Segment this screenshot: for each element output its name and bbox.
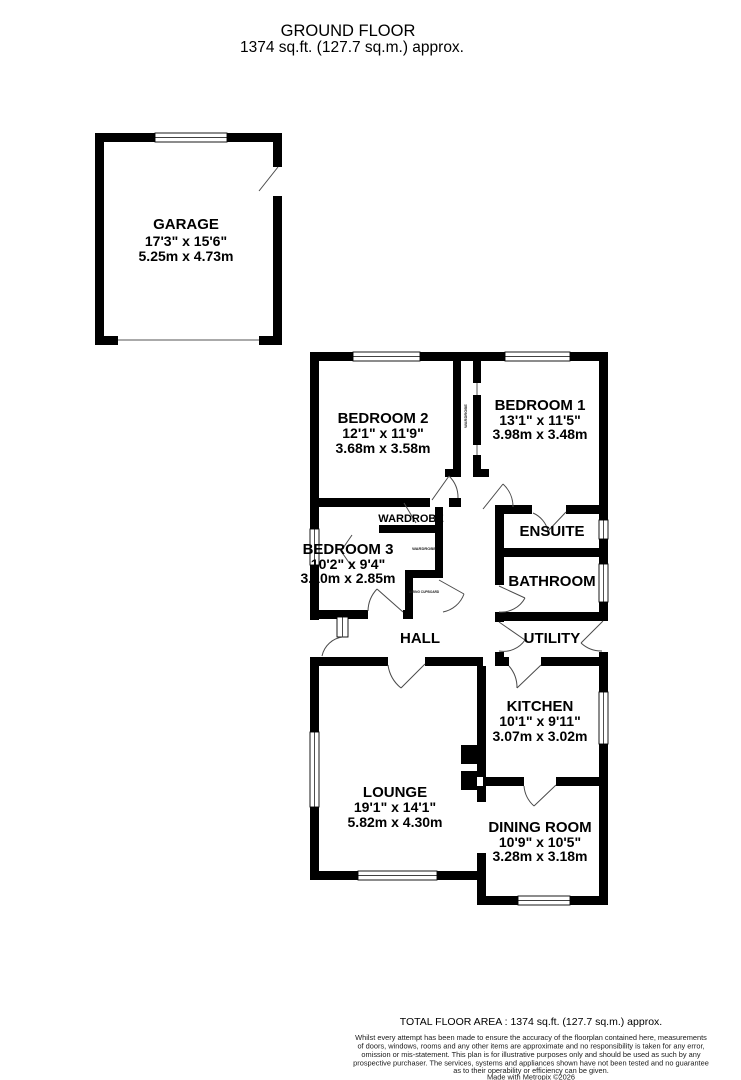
airing-cupboard-door (439, 580, 464, 612)
kitchen-window (599, 692, 608, 744)
room-label-hall: HALL (400, 630, 440, 647)
dining-door (524, 785, 556, 806)
bathroom-window (599, 564, 608, 602)
kitchen-door (509, 665, 541, 688)
ensuite-window (599, 520, 608, 539)
room-dim-kitchen-imperial: 10'1" x 9'11" (499, 713, 580, 729)
garage-side-door (259, 167, 278, 191)
bedroom2-window (353, 352, 420, 361)
room-label-airing-cupboard: AIRING CUPBOARD (409, 590, 440, 594)
page-subtitle: 1374 sq.ft. (127.7 sq.m.) approx. (240, 39, 464, 56)
room-label-wardrobe-small: WARDROBE (412, 546, 436, 551)
total-floor-area: TOTAL FLOOR AREA : 1374 sq.ft. (127.7 sq… (400, 1016, 662, 1028)
room-labels: GARAGE 17'3" x 15'6" 5.25m x 4.73m BEDRO… (139, 216, 596, 864)
bedroom1-window (505, 352, 570, 361)
room-dim-lounge-metric: 5.82m x 4.30m (348, 814, 443, 830)
floor-plan-canvas: GROUND FLOOR 1374 sq.ft. (127.7 sq.m.) a… (0, 0, 741, 1080)
bedroom3-door (368, 589, 403, 612)
dining-window (518, 896, 570, 905)
page-title: GROUND FLOOR (281, 22, 416, 40)
room-label-wardrobe-channel: WARDROBE (463, 404, 468, 428)
room-label-garage: GARAGE (153, 216, 219, 233)
garage-window (155, 133, 227, 142)
room-dim-garage-metric: 5.25m x 4.73m (139, 248, 234, 264)
room-dim-bedroom2-imperial: 12'1" x 11'9" (342, 425, 423, 441)
room-label-ensuite: ENSUITE (519, 523, 584, 540)
footer: TOTAL FLOOR AREA : 1374 sq.ft. (127.7 sq… (353, 1016, 709, 1080)
utility-hall-door (499, 622, 525, 651)
metropix-credit: Made with Metropix ©2026 (487, 1073, 575, 1080)
room-dim-kitchen-metric: 3.07m x 3.02m (493, 728, 588, 744)
room-dim-garage-imperial: 17'3" x 15'6" (145, 233, 227, 249)
lounge-door (388, 664, 425, 688)
front-door-sidelight (337, 617, 348, 637)
room-dim-lounge-imperial: 19'1" x 14'1" (354, 799, 436, 815)
room-dim-bedroom1-metric: 3.98m x 3.48m (493, 426, 588, 442)
utility-exterior-door (581, 621, 603, 651)
bedroom2-door (432, 476, 458, 500)
room-label-wardrobe: WARDROBE (378, 513, 443, 525)
room-label-utility: UTILITY (524, 630, 581, 647)
room-dim-bedroom2-metric: 3.68m x 3.58m (336, 440, 431, 456)
lounge-side-window (310, 732, 319, 807)
front-door-arc (322, 637, 343, 656)
lounge-bottom-window (358, 871, 437, 880)
room-dim-bedroom3-metric: 3.10m x 2.85m (301, 570, 396, 586)
floorplan-page: GROUND FLOOR 1374 sq.ft. (127.7 sq.m.) a… (0, 0, 741, 1080)
room-label-bathroom: BATHROOM (508, 573, 595, 590)
room-dim-dining-metric: 3.28m x 3.18m (493, 848, 588, 864)
